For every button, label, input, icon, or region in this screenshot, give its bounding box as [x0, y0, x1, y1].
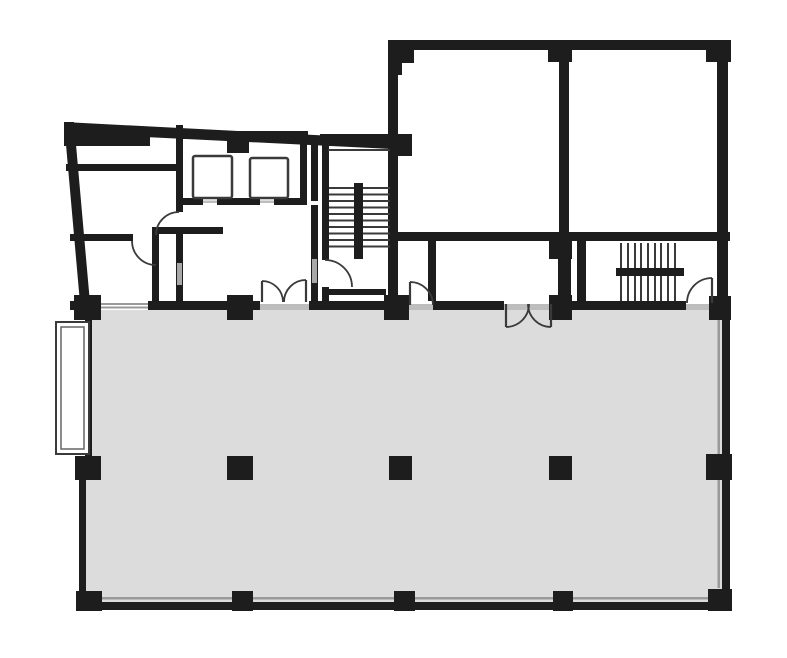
wall	[322, 134, 329, 260]
structural-column	[549, 295, 572, 320]
open-floor-area	[80, 303, 728, 607]
structural-column	[706, 454, 732, 480]
wall	[66, 164, 178, 171]
exterior-left-wall	[64, 122, 90, 303]
structural-column	[388, 134, 412, 156]
elevator-shaft	[193, 156, 232, 198]
wall	[300, 139, 307, 201]
structural-column	[548, 40, 572, 62]
structural-column	[227, 295, 253, 320]
wall	[388, 239, 398, 303]
door-swing-arc	[262, 281, 283, 302]
stair-handrail	[354, 183, 363, 259]
floor-plan-svg	[0, 0, 787, 658]
wall	[311, 205, 318, 303]
structural-column	[389, 456, 412, 480]
wall	[79, 468, 86, 608]
structural-column	[64, 132, 150, 146]
door-threshold	[686, 304, 713, 310]
door-threshold	[260, 201, 274, 204]
window-glazing-line	[97, 303, 148, 305]
door-threshold	[260, 304, 309, 310]
elevator-shaft	[250, 158, 288, 198]
structural-column	[232, 591, 253, 611]
bay-window-inner	[61, 327, 84, 449]
wall	[577, 239, 586, 303]
structural-column	[227, 456, 253, 480]
wall	[156, 227, 223, 234]
stair-handrail	[616, 268, 684, 276]
wall	[325, 289, 386, 295]
structural-column	[553, 591, 573, 611]
wall	[320, 134, 398, 143]
structural-column	[227, 133, 249, 153]
door-swing-arc	[687, 278, 712, 303]
wall	[70, 234, 133, 241]
floor-plan-page	[0, 0, 787, 658]
sliding-door-marker	[177, 263, 182, 285]
wall	[559, 40, 569, 241]
structural-column	[549, 239, 572, 259]
structural-column	[74, 295, 101, 320]
structural-column	[388, 40, 402, 75]
structural-column	[384, 295, 409, 320]
wall	[311, 139, 318, 201]
structural-column	[708, 589, 732, 611]
sliding-door-marker	[312, 259, 317, 283]
door-opening	[97, 301, 148, 310]
structural-column	[706, 40, 731, 62]
door-swing-arc	[325, 260, 352, 287]
structural-column	[76, 591, 102, 611]
window-glazing-line	[97, 307, 148, 309]
structural-column	[549, 456, 572, 480]
stair-landing-line	[328, 149, 390, 151]
door-swing-arc	[284, 280, 306, 302]
door-threshold	[203, 201, 217, 204]
structural-column	[75, 456, 101, 480]
wall	[717, 40, 728, 303]
structural-column	[394, 591, 415, 611]
door-threshold	[409, 304, 433, 310]
